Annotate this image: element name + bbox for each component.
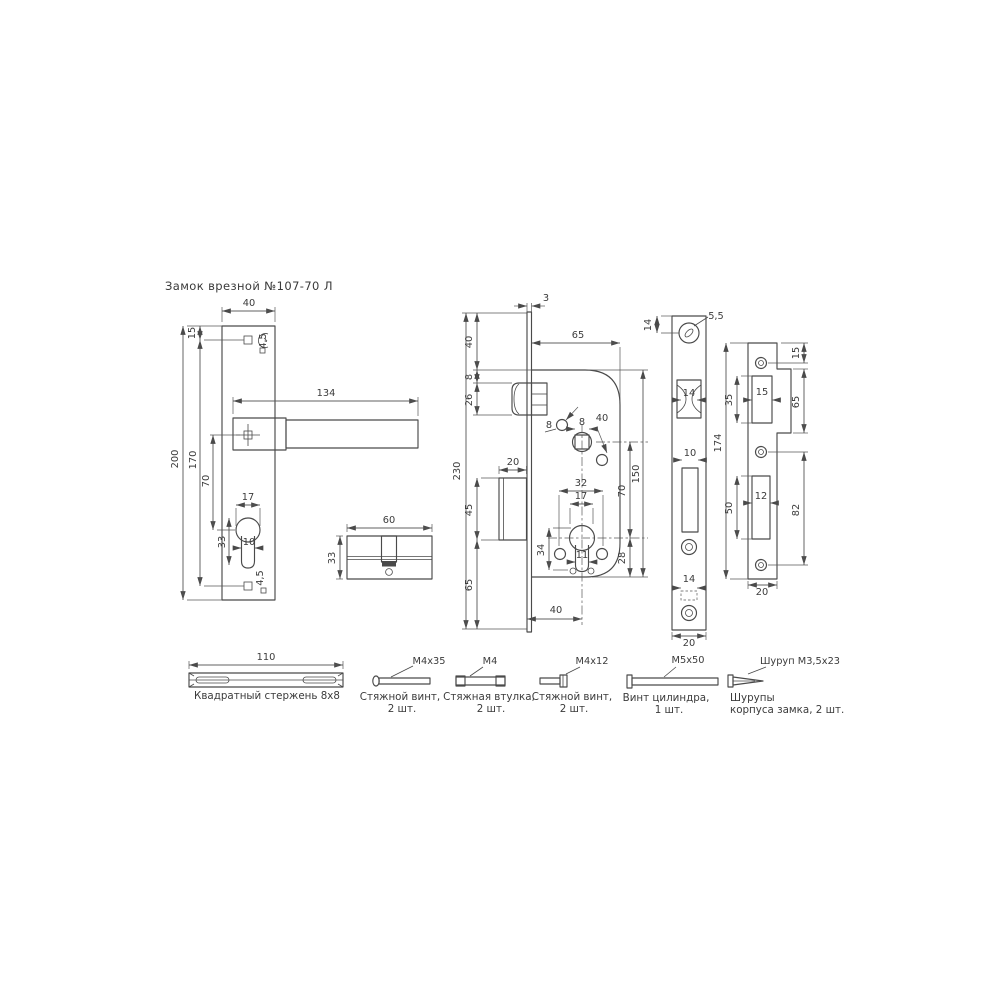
cylinder-body: [347, 536, 432, 579]
cylinder-view: 60 33: [327, 515, 432, 579]
handle-plate-outline: [222, 326, 275, 600]
dim-handle-to-keyhole: 70: [201, 475, 212, 487]
dim-spindle-size: 8: [579, 417, 585, 428]
strike-latch-cutout: [752, 376, 772, 423]
screw-m4x12-label: M4x12: [576, 656, 609, 667]
lock-body-dimensions: 3 40 8 26 230 65: [452, 293, 648, 629]
wood-screw-qty: корпуса замка, 2 шт.: [730, 704, 844, 716]
dim-strike-height: 174: [713, 434, 724, 453]
dim-cylinder-height: 33: [327, 552, 338, 564]
drawing-title: Замок врезной №107-70 Л: [165, 279, 333, 293]
dim-backset: 40: [550, 605, 562, 616]
dim-cylinder-offset: 34: [536, 544, 547, 556]
strike-hole-top: [756, 358, 767, 369]
dim-faceplate-height: 230: [452, 462, 463, 481]
handle-screw-hole-lower: [597, 455, 608, 466]
screw-m4x35-qty: 2 шт.: [388, 703, 417, 715]
drawing-sheet: Замок врезной №107-70 Л: [0, 0, 1000, 1000]
cylinder-slot: [382, 536, 397, 562]
faceplate-lower-recess: [681, 591, 697, 600]
dim-deadbolt-to-bottom: 65: [464, 579, 475, 591]
screw-m4x12: M4x12 Стяжной винт, 2 шт.: [532, 656, 612, 715]
dim-handle-length: 134: [317, 388, 336, 399]
dim-faceplate-width: 20: [683, 638, 695, 649]
dim-cylinder-dia: 17: [575, 491, 587, 502]
cylinder-dimensions: 60 33: [327, 515, 432, 579]
faceplate-top-hole: [679, 323, 699, 343]
rod-caption: Квадратный стержень 8х8: [194, 690, 340, 702]
wood-screw-label: Шуруп M3,5x23: [760, 656, 840, 667]
dim-body-height: 150: [631, 465, 642, 484]
handle-screw-hole-upper: [557, 420, 568, 431]
dim-plate-height: 200: [170, 450, 181, 469]
hardware-row: 110 Квадратный стержень 8х8 M4x35 Стяжно…: [189, 652, 844, 716]
dim-faceplate-top-offset: 14: [643, 319, 654, 331]
dim-rod-length: 110: [257, 652, 276, 663]
dim-faceplate-lower-cutout: 14: [683, 574, 695, 585]
dim-strike-bolt-width: 12: [755, 491, 767, 502]
dim-faceplate-thickness: 3: [543, 293, 549, 304]
dim-cylinder-to-bottom: 28: [617, 552, 628, 564]
faceplate-screw-hole-lower: [682, 606, 697, 621]
dim-lower-screw-span: 32: [575, 478, 587, 489]
latch-bolt: [512, 383, 547, 415]
handle-plate-dimensions: 40 15 134 200 170 70: [170, 298, 418, 600]
screw-m5x50-caption: Винт цилиндра,: [623, 692, 710, 704]
dim-keyhole-height: 33: [217, 536, 228, 548]
faceplate-latch-cutout: [677, 380, 701, 418]
sleeve-m4-label: M4: [483, 656, 498, 667]
screw-m4x35: M4x35 Стяжной винт, 2 шт.: [360, 656, 446, 715]
lower-screw-hole-right: [597, 549, 608, 560]
dim-faceplate-bolt-cutout: 10: [684, 448, 696, 459]
lock-faceplate-strip: [527, 312, 532, 632]
screw-m4x35-label: M4x35: [413, 656, 446, 667]
dim-deadbolt-width: 20: [507, 457, 519, 468]
dim-cylinder-lobe: 11: [576, 550, 588, 561]
sleeve-m4-qty: 2 шт.: [477, 703, 506, 715]
strike-hole-middle: [756, 447, 767, 458]
wood-screw: Шуруп M3,5x23 Шурупы корпуса замка, 2 шт…: [728, 656, 844, 716]
strike-hole-bottom: [756, 560, 767, 571]
wood-screw-caption: Шурупы: [730, 692, 775, 704]
dim-strike-width: 20: [756, 587, 768, 598]
dim-faceplate-latch-cutout: 14: [683, 388, 695, 399]
dim-screw-hole-spacing: 40: [596, 413, 608, 424]
dim-deadbolt-height: 45: [464, 504, 475, 516]
dim-keyhole-lobe: 10: [243, 537, 255, 548]
cylinder-pin-hole: [386, 569, 393, 576]
screw-m4x35-caption: Стяжной винт,: [360, 691, 440, 703]
cylinder-cam: [382, 561, 396, 567]
handle-neck: [233, 418, 286, 450]
screw-m4x12-qty: 2 шт.: [560, 703, 589, 715]
dim-cylinder-length: 60: [383, 515, 395, 526]
square-rod: 110 Квадратный стержень 8х8: [189, 652, 343, 702]
handle-lever: [286, 420, 418, 448]
strike-plate-outline: [748, 343, 791, 579]
faceplate-view: 5,5 14 14 10 14: [643, 311, 724, 649]
strike-bolt-cutout: [752, 476, 770, 539]
dim-plate-width: 40: [243, 298, 255, 309]
screw-m5x50-label: M5x50: [672, 655, 705, 666]
faceplate-bolt-cutout: [682, 468, 698, 532]
faceplate-screw-hole-upper: [682, 540, 697, 555]
dim-spindle-to-cylinder: 70: [617, 485, 628, 497]
dim-bottom-hole-dia: 4,5: [255, 570, 266, 586]
sleeve-m4-caption: Стяжная втулка,: [443, 691, 535, 703]
sleeve-m4: M4 Стяжная втулка, 2 шт.: [443, 656, 535, 715]
dim-top-hole-dia: 4,5: [258, 333, 269, 349]
dim-strike-tab-height: 65: [791, 396, 802, 408]
handle-plate-view: 40 15 134 200 170 70: [170, 298, 418, 600]
screw-m5x50: M5x50 Винт цилиндра, 1 шт.: [623, 655, 718, 716]
strike-plate-view: 15 12 35 50 174 15 65 82: [713, 343, 808, 598]
dim-keyhole-width: 17: [242, 492, 254, 503]
lower-screw-hole-left: [555, 549, 566, 560]
dim-hole-span: 170: [188, 451, 199, 470]
dim-screw-hole-dia: 8: [546, 420, 552, 431]
technical-drawing: Замок врезной №107-70 Л: [0, 0, 1000, 1000]
dim-top-hole-offset: 15: [187, 327, 198, 339]
lock-body-view: 3 40 8 26 230 65: [452, 293, 648, 632]
dim-strike-latch-width: 15: [756, 387, 768, 398]
deadbolt: [499, 478, 527, 540]
screw-m4x12-caption: Стяжной винт,: [532, 691, 612, 703]
dim-strike-hole-span: 82: [791, 504, 802, 516]
dim-strike-top-offset: 15: [791, 347, 802, 359]
dim-body-width: 65: [572, 330, 584, 341]
dim-faceplate-hole-dia: 5,5: [708, 311, 724, 322]
screw-m5x50-qty: 1 шт.: [655, 704, 684, 716]
